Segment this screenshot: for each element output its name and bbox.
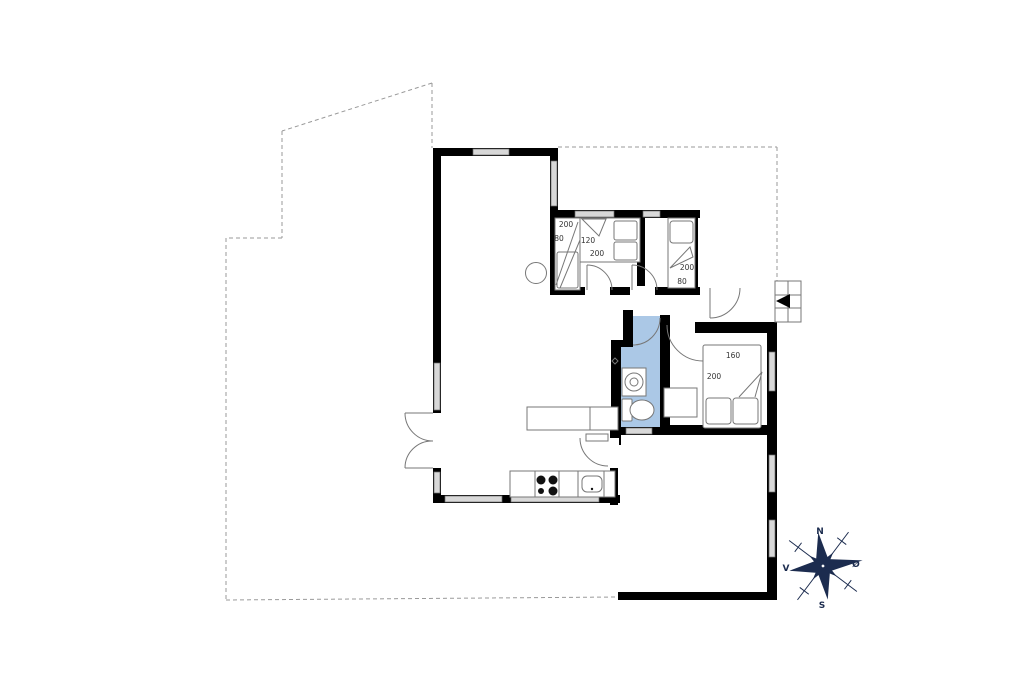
window [551,161,557,206]
dimension-label: 200 [680,263,695,272]
floor-plan: N S V Ø 200 80 120 200 200 80 160 200 [0,0,1024,682]
stove-burner [537,476,546,485]
plot-boundary-dashed [226,83,777,600]
window [434,363,440,410]
entrance-arrow-icon [776,294,790,308]
door-arc [405,413,433,441]
dimension-label: 160 [726,351,741,360]
compass-north-label: N [816,527,824,537]
window [769,352,775,391]
dimension-label: 200 [590,249,605,258]
floor-plan-drawing: N S V Ø 200 80 120 200 200 80 160 200 [0,0,1024,682]
dimension-label: 120 [581,236,596,245]
compass-east-label: Ø [852,559,860,570]
door-arc [710,288,740,318]
sink-cabinet [622,368,646,396]
door-leaf [586,434,608,441]
compass-rose: N S V Ø [783,527,868,611]
window [473,149,509,155]
kitchen-counter [510,471,615,497]
wall-segment [618,592,777,600]
wall-segment [611,340,633,347]
entrance [775,281,801,322]
dimension-label: 80 [677,277,687,286]
compass-west-label: V [783,564,790,574]
compass-south-label: S [819,601,825,611]
toilet-bowl [630,400,654,420]
window [575,211,614,217]
doors [405,265,740,468]
dimension-label: 200 [707,372,722,381]
stove-burner [549,476,558,485]
window [445,496,502,502]
stove-burner [538,488,544,494]
kitchen [510,407,618,497]
side-table [664,388,697,417]
door-arc [580,438,608,466]
wall-segment [550,210,700,218]
bedroom-master-furniture [664,345,762,428]
wood-stove [526,263,547,284]
window [769,455,775,492]
dimension-label: 80 [554,234,564,243]
stove-burner [549,487,558,496]
window [643,211,660,217]
kitchen-sink-drain [591,488,593,490]
window [769,520,775,557]
window [626,428,652,434]
door-arc [405,441,433,468]
window [434,472,440,493]
kitchen-island [527,407,618,430]
dimension-label: 200 [559,220,574,229]
wall-segment [695,322,777,333]
